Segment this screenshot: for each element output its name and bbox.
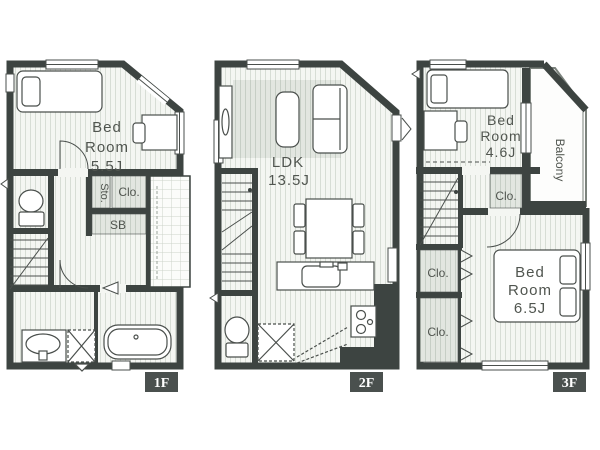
floor-plan-svg: Bed Room 5.5J Sto. Clo. SB 1F <box>0 0 600 450</box>
closet-label: Clo. <box>427 266 448 280</box>
room-label: 6.5J <box>514 300 546 317</box>
desk-icon-3f <box>424 111 457 150</box>
chair-icon <box>353 204 364 227</box>
pillow-icon <box>560 288 576 316</box>
closet-label: Clo. <box>495 189 516 203</box>
floor-plan-1f: Bed Room 5.5J Sto. Clo. SB 1F <box>1 60 190 392</box>
chair-icon-1f <box>133 123 145 143</box>
kitchen-sink-icon <box>302 266 340 287</box>
floor-tag-label-3f: 3F <box>562 376 578 391</box>
room-label: 4.6J <box>486 144 516 160</box>
labels-2f: LDK 13.5J <box>268 154 310 189</box>
chair-icon <box>353 231 364 254</box>
balcony-label: Balcony <box>553 139 567 182</box>
floor-tag-label-1f: 1F <box>154 376 170 391</box>
desk-icon-1f <box>142 115 177 150</box>
pillow-icon <box>560 256 576 284</box>
dining-table-icon <box>306 199 352 258</box>
room-label: Room <box>480 128 521 144</box>
toilet-icon-1f <box>19 190 44 226</box>
closet-label: Clo. <box>427 325 448 339</box>
closet-label: Clo. <box>118 185 139 199</box>
pillow-icon <box>431 75 447 103</box>
room-label: Bed <box>515 264 545 281</box>
shoebox-label: SB <box>110 218 126 232</box>
chair-icon <box>294 231 305 254</box>
floor-tag-label-2f: 2F <box>359 376 375 391</box>
coffee-table-icon <box>276 92 299 147</box>
floor-plan-image: Bed Room 5.5J Sto. Clo. SB 1F <box>0 0 600 450</box>
room-label: LDK <box>272 154 304 171</box>
pillow-icon-1f <box>22 77 40 106</box>
floor-plan-2f: LDK 13.5J 2F <box>210 60 411 392</box>
room-label: Room <box>85 139 129 156</box>
room-label: Room <box>508 282 552 299</box>
toilet-icon-2f <box>225 317 249 357</box>
entrance-tile-area <box>150 176 190 287</box>
room-label: Bed <box>92 119 122 136</box>
chair-icon <box>294 204 305 227</box>
storage-label: Sto. <box>98 183 110 203</box>
room-label: 5.5J <box>91 158 123 175</box>
room-label: Bed <box>487 112 515 128</box>
chair-icon-3f <box>455 121 467 142</box>
room-label: 13.5J <box>268 172 310 189</box>
floor-plan-3f: Bed Room 4.6J Balcony Clo. Clo. Clo. Bed… <box>412 60 590 392</box>
